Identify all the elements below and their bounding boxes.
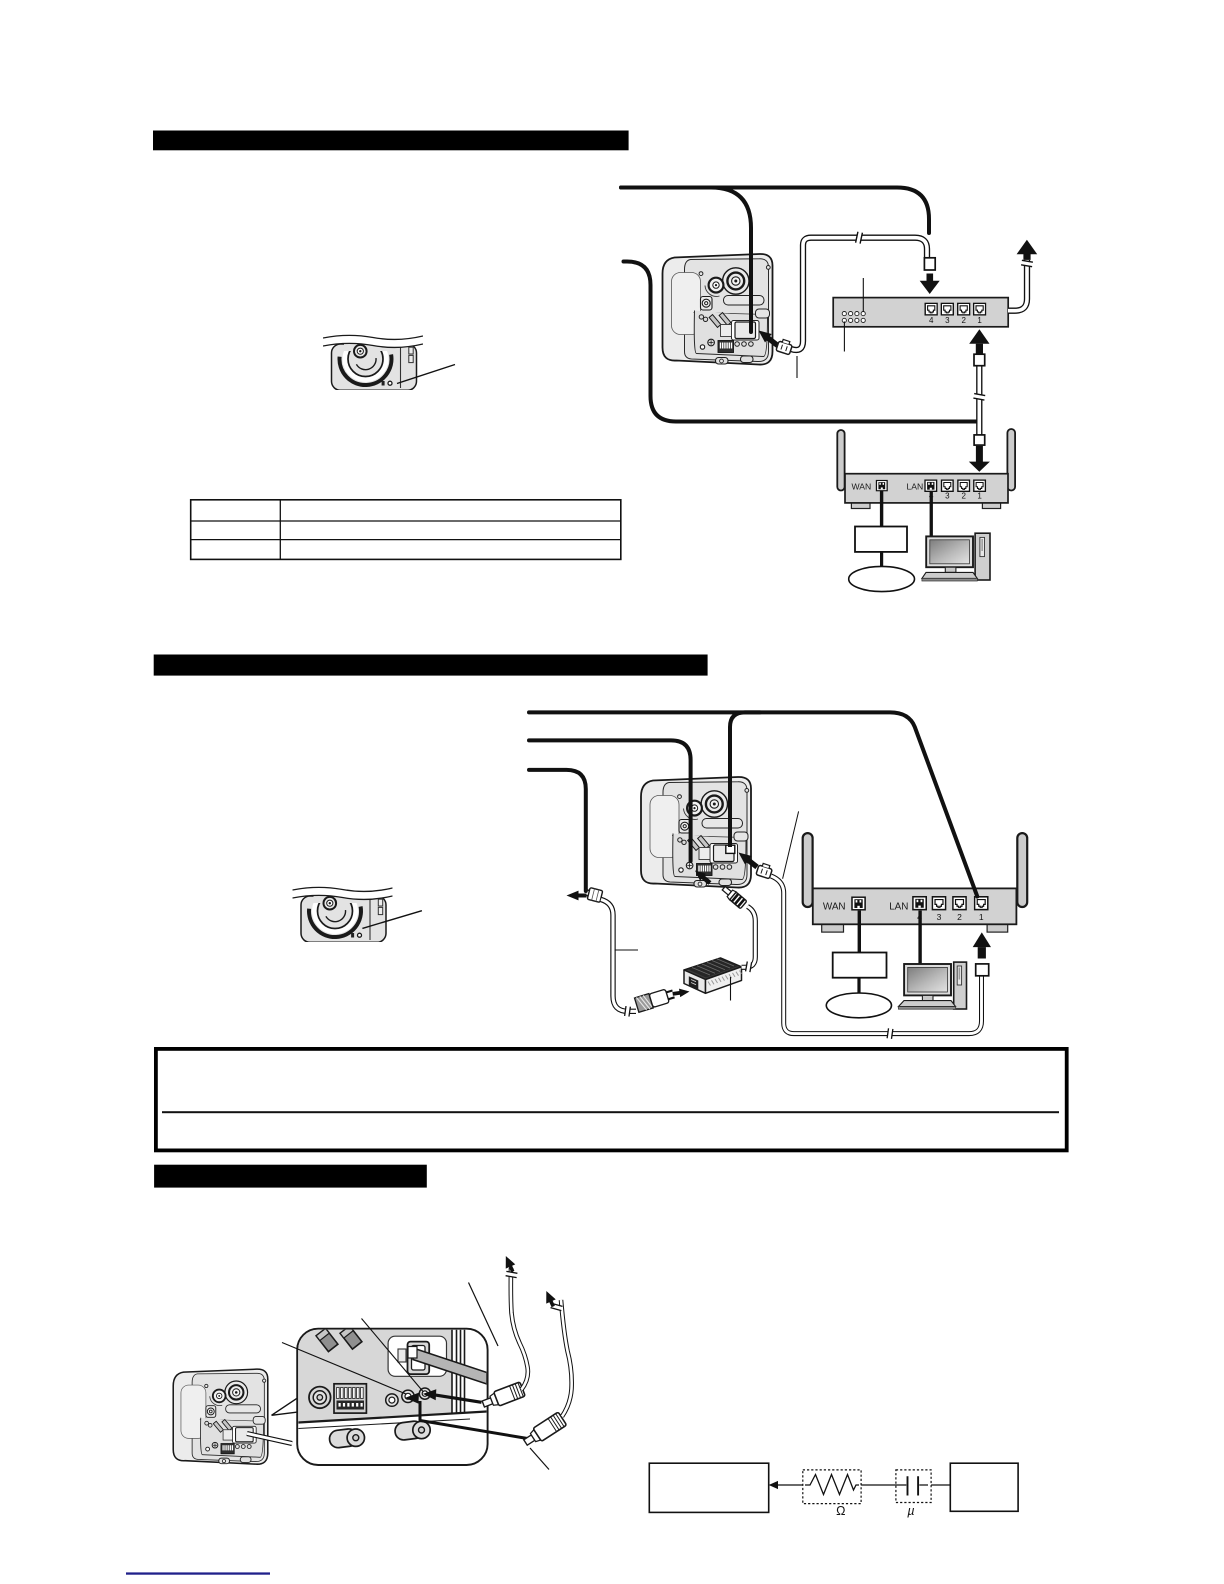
- svg-text:1: 1: [977, 316, 982, 325]
- svg-text:3: 3: [945, 316, 950, 325]
- svg-text:WAN: WAN: [823, 902, 846, 913]
- svg-text:4: 4: [929, 316, 934, 325]
- svg-text:3: 3: [937, 912, 942, 922]
- svg-text:Ω: Ω: [836, 1504, 845, 1518]
- svg-text:3: 3: [945, 492, 950, 501]
- svg-text:1: 1: [977, 492, 982, 501]
- svg-text:µ: µ: [907, 1504, 914, 1518]
- svg-text:2: 2: [957, 912, 962, 922]
- svg-text:LAN: LAN: [889, 902, 908, 913]
- svg-text:2: 2: [961, 492, 966, 501]
- svg-text:WAN: WAN: [852, 482, 872, 492]
- svg-text:1: 1: [979, 912, 984, 922]
- svg-text:2: 2: [961, 316, 966, 325]
- svg-text:LAN: LAN: [907, 482, 924, 492]
